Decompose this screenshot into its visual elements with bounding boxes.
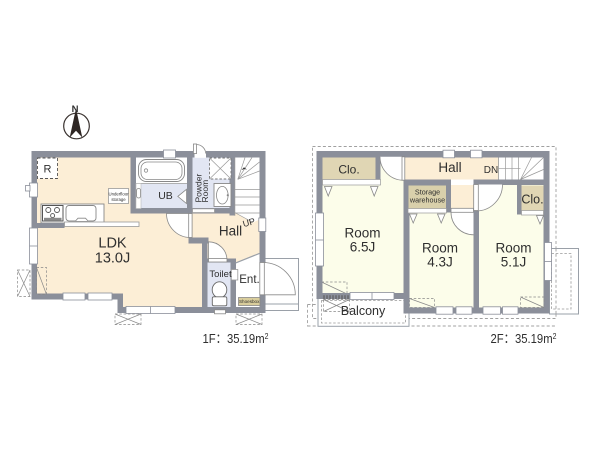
svg-text:Underfloor: Underfloor xyxy=(108,192,129,197)
svg-text:UB: UB xyxy=(158,190,173,202)
svg-text:5.1J: 5.1J xyxy=(501,255,527,270)
svg-text:Room: Room xyxy=(422,241,458,256)
svg-text:1F：35.19m2: 1F：35.19m2 xyxy=(203,331,269,346)
svg-text:6.5J: 6.5J xyxy=(350,240,376,255)
svg-text:Clo.: Clo. xyxy=(338,163,359,177)
svg-text:warehouse: warehouse xyxy=(409,195,445,204)
svg-text:Clo.: Clo. xyxy=(521,193,543,207)
svg-text:DN: DN xyxy=(484,165,498,176)
svg-text:R: R xyxy=(44,164,52,176)
svg-text:Shoesbox: Shoesbox xyxy=(239,299,260,304)
svg-text:Balcony: Balcony xyxy=(341,304,386,318)
svg-text:Room: Room xyxy=(344,226,380,241)
svg-text:2F：35.19m2: 2F：35.19m2 xyxy=(491,331,557,346)
svg-text:N: N xyxy=(72,104,79,115)
svg-text:Ent.: Ent. xyxy=(239,274,259,286)
svg-text:Room: Room xyxy=(200,180,210,203)
svg-text:LDK: LDK xyxy=(98,236,127,252)
svg-text:4.3J: 4.3J xyxy=(427,255,453,270)
svg-text:Toilet: Toilet xyxy=(209,269,232,280)
svg-text:Room: Room xyxy=(495,241,531,256)
svg-text:storage: storage xyxy=(111,197,126,202)
svg-text:Hall: Hall xyxy=(219,224,242,239)
svg-text:Hall: Hall xyxy=(438,160,461,175)
svg-text:13.0J: 13.0J xyxy=(95,251,130,267)
